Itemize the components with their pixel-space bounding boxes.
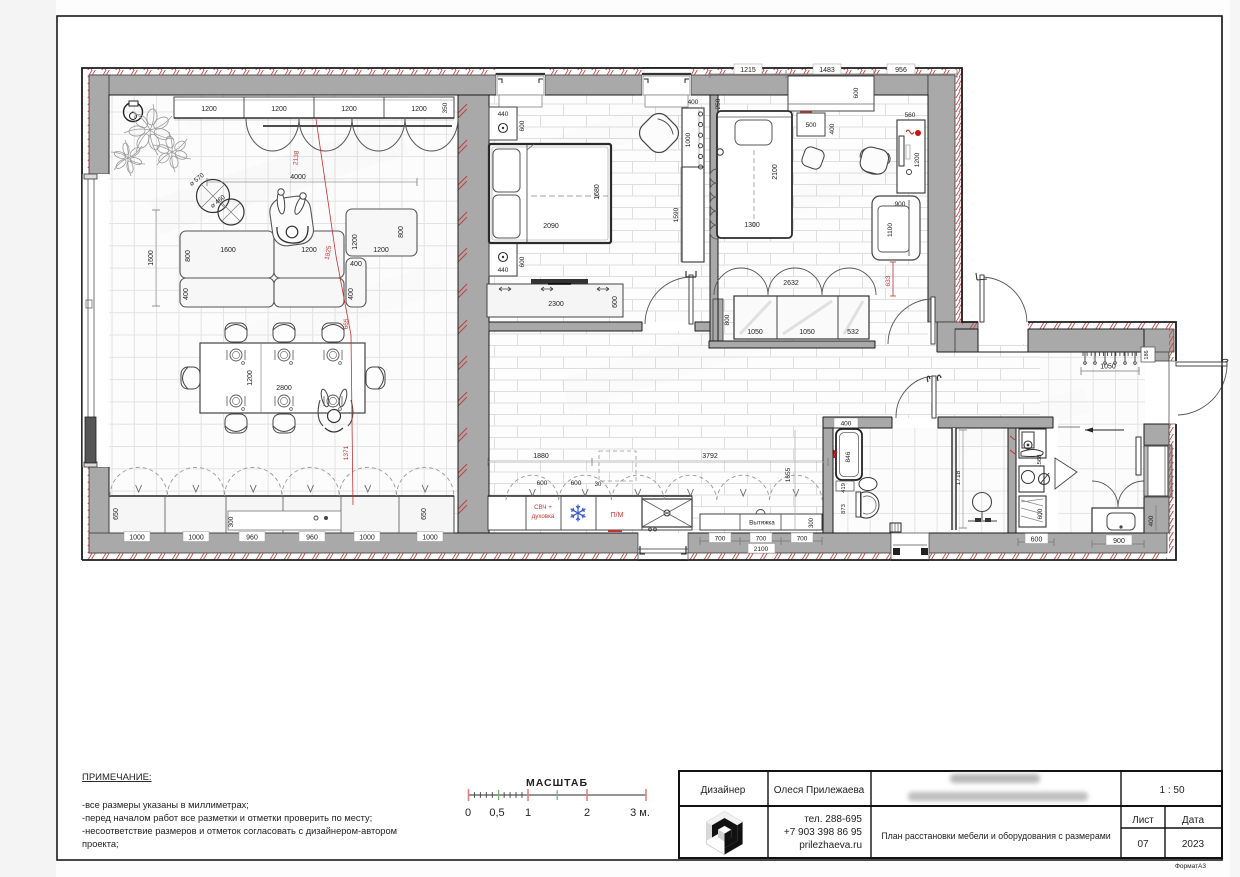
svg-text:960: 960 [306,535,318,542]
svg-text:900: 900 [895,201,906,208]
svg-text:186: 186 [1144,350,1150,359]
svg-text:600: 600 [853,87,860,98]
svg-text:1200: 1200 [341,106,357,113]
svg-text:1000: 1000 [129,535,145,542]
svg-text:3 м.: 3 м. [630,807,650,819]
svg-text:-несоответствие размеров и отм: -несоответствие размеров и отметок согла… [82,826,397,836]
svg-text:300: 300 [809,517,815,528]
svg-text:1680: 1680 [594,184,601,200]
svg-text:700: 700 [756,536,767,543]
svg-text:2300: 2300 [548,301,564,308]
svg-text:440: 440 [498,111,509,118]
svg-text:800: 800 [724,314,731,325]
svg-text:духовка: духовка [532,513,555,520]
svg-text:Лист: Лист [1132,815,1154,826]
svg-text:1200: 1200 [411,106,427,113]
svg-text:-перед началом работ все разме: -перед началом работ все разметки и отме… [82,813,372,823]
svg-text:1200: 1200 [301,247,317,254]
svg-text:2632: 2632 [783,280,799,287]
svg-text:2100: 2100 [772,164,779,180]
svg-text:1200: 1200 [352,234,359,250]
svg-text:Олеся Прилежаева: Олеся Прилежаева [774,785,865,796]
svg-text:проекта;: проекта; [82,839,119,849]
svg-text:1: 1 [525,807,531,819]
svg-text:prilezhaeva.ru: prilezhaeva.ru [799,840,862,851]
svg-text:1050: 1050 [799,329,815,336]
svg-text:400: 400 [348,288,355,300]
svg-text:2023: 2023 [1182,839,1205,850]
svg-text:400: 400 [183,288,190,300]
svg-text:600: 600 [1037,508,1044,519]
svg-text:ФорматА3: ФорматА3 [1175,863,1206,870]
svg-text:400: 400 [829,123,836,134]
svg-text:07: 07 [1137,839,1149,850]
svg-text:846: 846 [845,451,852,462]
svg-text:650: 650 [421,508,428,520]
svg-text:ПРИМЕЧАНИЕ:: ПРИМЕЧАНИЕ: [82,772,152,783]
svg-text:2138: 2138 [292,150,300,165]
svg-text:800: 800 [185,250,192,262]
svg-text:1200: 1200 [201,106,217,113]
svg-text:600: 600 [1031,537,1043,544]
svg-text:1600: 1600 [220,247,236,254]
svg-text:1200: 1200 [373,247,389,254]
svg-text:СВЧ +: СВЧ + [534,504,552,511]
svg-text:1000: 1000 [685,132,692,147]
svg-text:1590: 1590 [673,207,680,222]
svg-text:1371: 1371 [343,445,350,460]
svg-text:400: 400 [1148,515,1155,526]
svg-text:1718: 1718 [955,470,962,485]
svg-text:1000: 1000 [188,535,204,542]
svg-text:0,5: 0,5 [489,807,504,819]
svg-text:250: 250 [715,98,722,109]
svg-text:500: 500 [806,122,817,129]
svg-text:Дата: Дата [1182,815,1205,826]
svg-text:1200: 1200 [914,152,921,167]
svg-text:1100: 1100 [887,223,894,237]
svg-text:600: 600 [519,120,526,131]
svg-text:0: 0 [465,807,471,819]
svg-text:1050: 1050 [747,329,763,336]
svg-text:960: 960 [246,535,258,542]
svg-text:2: 2 [584,807,590,819]
svg-text:1000: 1000 [422,535,438,542]
svg-text:1050: 1050 [1100,364,1116,371]
svg-text:700: 700 [715,536,726,543]
svg-text:2090: 2090 [543,223,559,230]
svg-text:600: 600 [519,256,526,267]
svg-text:1880: 1880 [533,453,549,460]
svg-text:419: 419 [841,483,847,493]
svg-text:700: 700 [797,536,808,543]
svg-text:4000: 4000 [290,174,306,181]
svg-text:Дизайнер: Дизайнер [701,785,746,796]
svg-text:1600: 1600 [148,250,155,266]
svg-text:600: 600 [571,480,582,487]
svg-text:665: 665 [343,318,351,330]
svg-text:600: 600 [537,480,548,487]
svg-text:1000: 1000 [359,535,375,542]
svg-text:400: 400 [841,421,852,428]
svg-text:1483: 1483 [819,67,835,74]
svg-text:План расстановки мебели и обор: План расстановки мебели и оборудования с… [881,831,1110,841]
svg-text:Вытяжка: Вытяжка [749,520,775,527]
svg-text:1655: 1655 [785,467,792,482]
svg-text:633: 633 [885,275,892,286]
svg-text:600: 600 [612,296,619,308]
svg-text:650: 650 [113,508,120,520]
svg-text:тел. 288-695: тел. 288-695 [804,814,862,825]
svg-text:30: 30 [595,482,602,488]
svg-text:440: 440 [498,267,509,274]
svg-text:2100: 2100 [754,546,769,553]
svg-text:350: 350 [442,102,449,113]
svg-text:1200: 1200 [247,370,254,386]
svg-text:400: 400 [350,261,362,268]
svg-text:1215: 1215 [740,67,756,74]
svg-text:МАСШТАБ: МАСШТАБ [526,777,588,789]
svg-text:300: 300 [228,516,235,527]
svg-text:1 : 50: 1 : 50 [1159,785,1184,796]
svg-text:1300: 1300 [744,222,760,229]
svg-text:956: 956 [895,67,907,74]
svg-text:+7 903 398 86 95: +7 903 398 86 95 [784,827,863,838]
svg-text:-все размеры указаны в миллиме: -все размеры указаны в миллиметрах; [82,800,249,810]
svg-text:800: 800 [398,226,405,238]
svg-text:873: 873 [841,504,847,514]
svg-text:400: 400 [688,99,699,106]
svg-text:3792: 3792 [702,453,718,460]
svg-text:П/М: П/М [611,512,624,519]
svg-text:560: 560 [905,112,916,119]
svg-text:2800: 2800 [276,385,292,392]
svg-text:1200: 1200 [271,106,287,113]
svg-text:532: 532 [847,329,859,336]
svg-text:900: 900 [1113,538,1125,545]
